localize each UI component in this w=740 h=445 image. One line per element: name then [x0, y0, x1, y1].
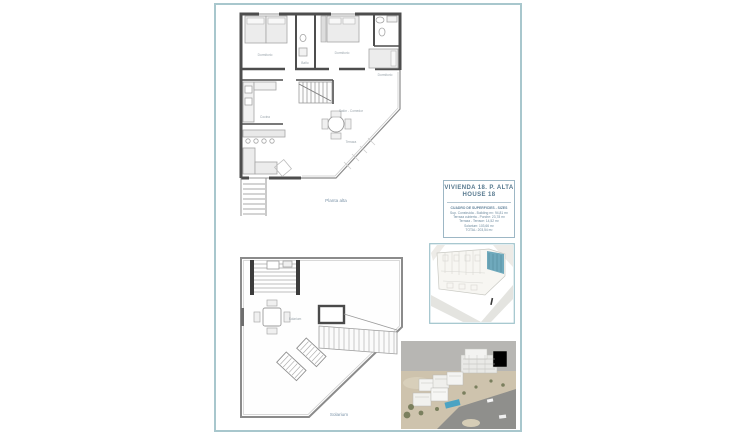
skylight: [319, 306, 344, 323]
aerial-render-image: [401, 341, 516, 429]
label-kitchen: Cocina: [260, 115, 270, 119]
bed-middle: [321, 16, 359, 42]
plan-sheet-frame: Dormitorio Baño Dormitorio Dormitorio Co…: [214, 3, 522, 432]
dining-table: [322, 111, 351, 139]
bed-double-left: [245, 16, 287, 43]
label-solarium-small: Solarium: [289, 317, 302, 321]
page: Dormitorio Baño Dormitorio Dormitorio Co…: [0, 0, 740, 445]
surface-row: TOTAL: 203,54 m²: [444, 228, 514, 232]
label-bedroom-3: Dormitorio: [378, 73, 393, 77]
solarium-floor-plan: Solarium Solarium: [239, 250, 425, 428]
label-bedroom-1: Dormitorio: [258, 53, 273, 57]
label-terrace: Terraza: [346, 140, 357, 144]
label-bath: Baño: [301, 61, 309, 65]
lower-plan-caption: Solarium: [330, 412, 348, 417]
bed-right: [369, 49, 398, 68]
sofa: [243, 148, 291, 176]
label-bedroom-2: Dormitorio: [335, 51, 350, 55]
label-living: Salón - Comedor: [339, 109, 364, 113]
bathroom-fixtures: [376, 16, 397, 36]
stairs-upper: [299, 82, 332, 103]
wall-stub: [241, 308, 244, 326]
kitchen-island: [243, 130, 285, 143]
upper-plan-caption: Planta alta: [325, 198, 347, 203]
title-block: VIVIENDA 18. P. ALTA HOUSE 18 CUADRO DE …: [443, 180, 515, 238]
surface-table-header: CUADRO DE SUPERFICIES - SIZES: [444, 206, 514, 211]
hall-bath-fixtures: [299, 34, 307, 56]
render-road-island: [462, 419, 480, 427]
title-line-2: HOUSE 18: [447, 192, 511, 203]
title-line-1: VIVIENDA 18. P. ALTA: [444, 185, 514, 192]
site-location-map: [429, 243, 515, 324]
exterior-stairs: [241, 178, 266, 216]
upper-floor-plan: Dormitorio Baño Dormitorio Dormitorio Co…: [239, 12, 425, 240]
